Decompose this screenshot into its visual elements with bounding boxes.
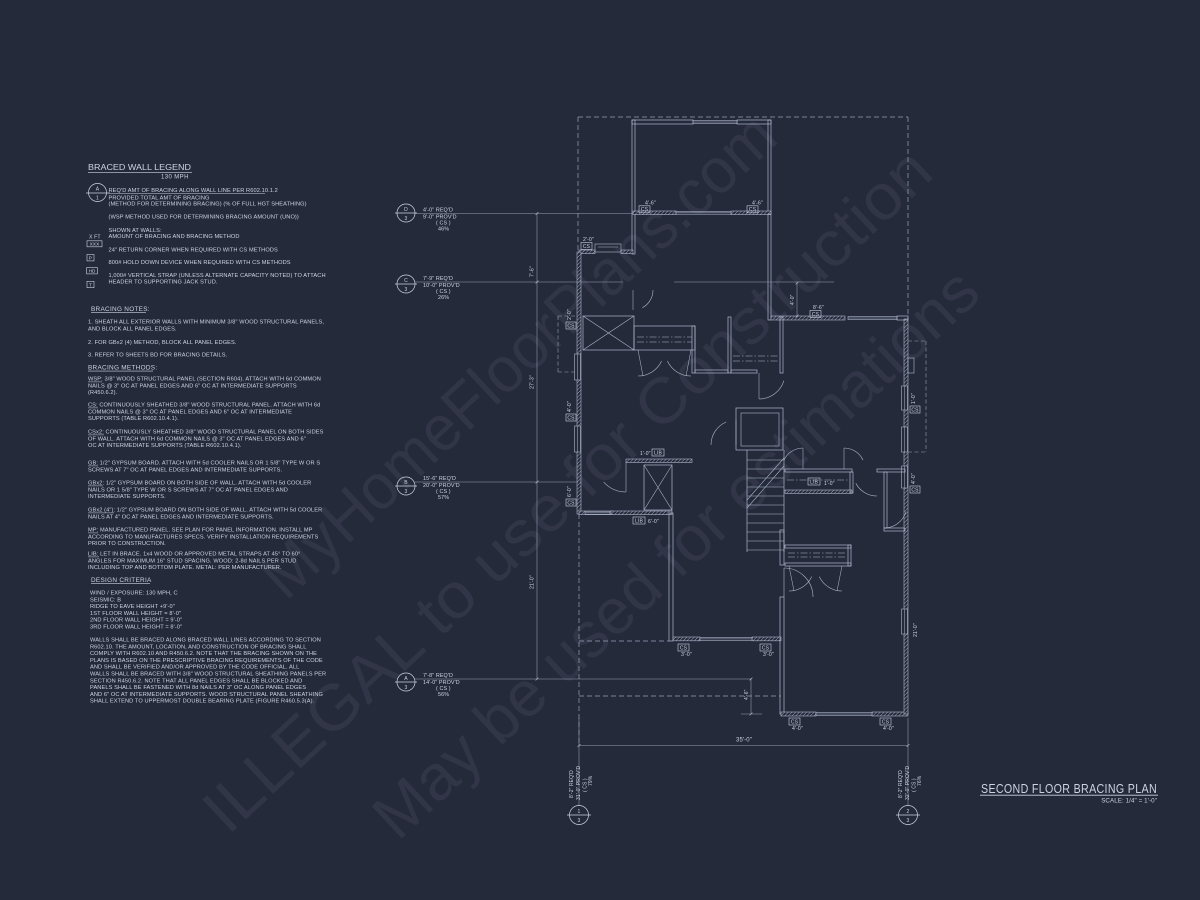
- svg-text:WALLS SHALL BE BRACED WITH 3/8: WALLS SHALL BE BRACED WITH 3/8" WOOD STR…: [90, 672, 326, 678]
- svg-text:XXX: XXX: [90, 242, 100, 247]
- svg-text:26%: 26%: [438, 295, 449, 301]
- svg-text:X FT: X FT: [89, 234, 101, 240]
- svg-text:1,000# VERTICAL STRAP (UNLESS: 1,000# VERTICAL STRAP (UNLESS ALTERNATE …: [109, 273, 326, 279]
- svg-text:BRACING NOTES:: BRACING NOTES:: [91, 306, 150, 313]
- svg-text:LIB: LIB: [635, 518, 643, 524]
- svg-text:130 MPH: 130 MPH: [161, 175, 189, 181]
- svg-text:PRIOR TO CONSTRUCTION.: PRIOR TO CONSTRUCTION.: [88, 541, 166, 547]
- svg-text:CS: CS: [812, 312, 820, 318]
- svg-text:GB: 1/2" GYPSUM BOARD. ATTACH: GB: 1/2" GYPSUM BOARD. ATTACH WITH 5d CO…: [88, 461, 320, 467]
- svg-text:CS: CS: [749, 207, 757, 213]
- svg-text:SECOND FLOOR BRACING PLAN: SECOND FLOOR BRACING PLAN: [981, 781, 1157, 796]
- svg-text:35'-0": 35'-0": [736, 738, 752, 744]
- svg-text:LIB: LIB: [810, 479, 818, 485]
- svg-text:SHALL EXTEND TO UPPERMOST DOUB: SHALL EXTEND TO UPPERMOST DOUBLE BEARING…: [90, 699, 315, 705]
- svg-text:WSP: 3/8" WOOD STRUCTURAL PANE: WSP: 3/8" WOOD STRUCTURAL PANEL (SECTION…: [88, 377, 321, 383]
- svg-text:1ST FLOOR WALL HEIGHT = 8'-0": 1ST FLOOR WALL HEIGHT = 8'-0": [90, 611, 181, 617]
- svg-text:(METHOD FOR DETERMINING BRACIN: (METHOD FOR DETERMINING BRACING) (% OF F…: [109, 202, 307, 208]
- svg-text:PANELS SHALL BE FASTENED WITH: PANELS SHALL BE FASTENED WITH 8d NAILS A…: [90, 685, 306, 691]
- svg-text:AND SHALL BE VERIFIED AND/OR A: AND SHALL BE VERIFIED AND/OR APPROVED BY…: [90, 665, 299, 671]
- svg-text:1'-0": 1'-0": [824, 481, 835, 487]
- svg-text:800# HOLD DOWN DEVICE WHEN REQ: 800# HOLD DOWN DEVICE WHEN REQUIRED WITH…: [109, 260, 291, 266]
- svg-text:CS: CS: [567, 415, 575, 421]
- svg-text:DESIGN CRITERIA: DESIGN CRITERIA: [91, 577, 152, 584]
- svg-text:WALLS SHALL BE BRACED ALONG BR: WALLS SHALL BE BRACED ALONG BRACED WALL …: [90, 638, 321, 644]
- svg-text:3: 3: [405, 287, 408, 293]
- svg-text:31'-0" PROV'D: 31'-0" PROV'D: [576, 766, 582, 800]
- svg-text:NAILS @ 3" OC AT PANEL EDGES A: NAILS @ 3" OC AT PANEL EDGES AND 6" OC A…: [88, 383, 297, 389]
- svg-text:CS: CS: [791, 719, 799, 725]
- svg-text:BRACING METHODS:: BRACING METHODS:: [88, 365, 157, 372]
- svg-text:NAILS OR 1 5/8" TYPE W OR S SC: NAILS OR 1 5/8" TYPE W OR S SCREWS AT 7"…: [88, 487, 288, 493]
- svg-text:7'-6": 7'-6": [530, 266, 536, 277]
- svg-text:PROVIDED TOTAL AMT OF BRACING: PROVIDED TOTAL AMT OF BRACING: [109, 195, 210, 201]
- svg-text:1: 1: [578, 809, 581, 815]
- svg-text:CS: CONTINUOUSLY SHEATHED 3/8": CS: CONTINUOUSLY SHEATHED 3/8" WOOD STRU…: [88, 403, 320, 409]
- svg-text:4'-0": 4'-0": [883, 726, 894, 732]
- svg-text:24" RETURN CORNER WHEN REQUIRE: 24" RETURN CORNER WHEN REQUIRED WITH CS …: [109, 247, 278, 253]
- svg-text:GBx2 (4"): 1/2" GYPSUM BOARD O: GBx2 (4"): 1/2" GYPSUM BOARD ON BOTH SID…: [88, 508, 322, 514]
- svg-text:COMMON NAILS @ 3" OC AT PANEL: COMMON NAILS @ 3" OC AT PANEL EDGES AND …: [88, 409, 292, 415]
- svg-text:46%: 46%: [438, 227, 449, 233]
- svg-text:2. FOR GBx2 (4) METHOD, BLOCK: 2. FOR GBx2 (4) METHOD, BLOCK ALL PANEL …: [88, 340, 237, 346]
- svg-text:C: C: [404, 278, 408, 284]
- svg-text:WIND / EXPOSURE: 130 MPH, C: WIND / EXPOSURE: 130 MPH, C: [90, 591, 178, 597]
- svg-text:OC AT INTERMEDIATE SUPPORTS (T: OC AT INTERMEDIATE SUPPORTS (TABLE R602.…: [88, 443, 242, 449]
- svg-text:4'-0" REQ'D: 4'-0" REQ'D: [423, 208, 453, 214]
- svg-text:3RD FLOOR WALL HEIGHT = 8'-0": 3RD FLOOR WALL HEIGHT = 8'-0": [90, 625, 182, 631]
- svg-text:HD: HD: [89, 269, 96, 274]
- svg-text:SCREWS AT 7" OC AT PANEL EDGES: SCREWS AT 7" OC AT PANEL EDGES AND INTER…: [88, 467, 283, 473]
- svg-text:RIDGE TO EAVE HEIGHT +9'-0": RIDGE TO EAVE HEIGHT +9'-0": [90, 604, 175, 610]
- svg-text:INTERMEDIATE SUPPORTS.: INTERMEDIATE SUPPORTS.: [88, 494, 166, 500]
- svg-text:1: 1: [96, 196, 99, 202]
- svg-text:79%: 79%: [588, 775, 594, 786]
- svg-text:T: T: [89, 282, 92, 287]
- svg-text:3. REFER TO SHEETS BD FOR BRAC: 3. REFER TO SHEETS BD FOR BRACING DETAIL…: [88, 353, 228, 359]
- svg-text:3: 3: [405, 216, 408, 222]
- svg-text:SHOWN AT WALLS:: SHOWN AT WALLS:: [109, 228, 162, 234]
- svg-text:A: A: [96, 187, 100, 193]
- svg-text:3: 3: [578, 818, 581, 824]
- svg-text:4'-6": 4'-6": [744, 689, 750, 700]
- svg-text:GBx2: 1/2" GYPSUM BOARD ON BOT: GBx2: 1/2" GYPSUM BOARD ON BOTH SIDE OF …: [88, 481, 311, 487]
- svg-text:PLANS IS BASED ON THE PRESCRIP: PLANS IS BASED ON THE PRESCRIPTIVE BRACI…: [90, 658, 323, 664]
- svg-text:COMPLY WITH R602.10 AND R450.6: COMPLY WITH R602.10 AND R450.6.2. NOTE T…: [90, 651, 317, 657]
- svg-text:3: 3: [907, 818, 910, 824]
- svg-text:HEADER TO SUPPORTING JACK STUD: HEADER TO SUPPORTING JACK STUD.: [109, 280, 218, 286]
- svg-text:P: P: [89, 256, 92, 261]
- svg-text:CS: CS: [762, 645, 770, 651]
- svg-text:21'-0": 21'-0": [913, 623, 919, 637]
- svg-text:8'-2" REQ'D: 8'-2" REQ'D: [898, 770, 904, 798]
- svg-text:BRACED WALL LEGEND: BRACED WALL LEGEND: [88, 162, 191, 172]
- svg-text:CS: CS: [911, 487, 919, 493]
- svg-text:7'-9" REQ'D: 7'-9" REQ'D: [423, 276, 453, 282]
- svg-text:OF WALL. ATTACH WITH 6d COMMON: OF WALL. ATTACH WITH 6d COMMON NAILS @ 3…: [88, 436, 306, 442]
- svg-text:D: D: [404, 207, 408, 213]
- svg-text:2ND FLOOR WALL HEIGHT = 9'-0": 2ND FLOOR WALL HEIGHT = 9'-0": [90, 618, 182, 624]
- svg-text:4'-0": 4'-0": [911, 473, 917, 484]
- svg-text:4'-0": 4'-0": [567, 401, 573, 412]
- svg-text:76%: 76%: [917, 775, 923, 786]
- svg-text:56%: 56%: [438, 692, 449, 698]
- svg-text:NAILS AT 4" OC AT PANEL EDGES: NAILS AT 4" OC AT PANEL EDGES AND INTERM…: [88, 514, 274, 520]
- svg-text:8'-2" REQ'D: 8'-2" REQ'D: [569, 770, 575, 798]
- svg-text:4'-0": 4'-0": [792, 726, 803, 732]
- svg-text:SEISMIC: B: SEISMIC: B: [90, 597, 121, 603]
- svg-text:SECTION R450.6.2. NOTE THAT AL: SECTION R450.6.2. NOTE THAT ALL PANEL ED…: [90, 678, 302, 684]
- svg-text:SCALE: 1/4" = 1'-0": SCALE: 1/4" = 1'-0": [1101, 798, 1157, 805]
- svg-text:AND 6" OC AT INTERMEDIATE SUPP: AND 6" OC AT INTERMEDIATE SUPPORTS. WOOD…: [90, 692, 323, 698]
- svg-text:AND BLOCK ALL PANEL EDGES.: AND BLOCK ALL PANEL EDGES.: [88, 326, 177, 332]
- svg-text:CS: CS: [680, 645, 688, 651]
- svg-text:32'-0" PROV'D: 32'-0" PROV'D: [905, 766, 911, 800]
- svg-text:CSx2: CONTINUOUSLY SHEATHED 3/: CSx2: CONTINUOUSLY SHEATHED 3/8" WOOD ST…: [88, 430, 324, 436]
- svg-text:21'-0": 21'-0": [530, 575, 536, 589]
- svg-text:AMOUNT OF BRACING AND BRACING: AMOUNT OF BRACING AND BRACING METHOD: [109, 234, 240, 240]
- svg-text:R602.10. THE AMOUNT, LOCATION,: R602.10. THE AMOUNT, LOCATION, AND CONST…: [90, 644, 307, 650]
- svg-text:2: 2: [907, 809, 910, 815]
- svg-text:3'-0": 3'-0": [763, 652, 774, 658]
- svg-text:57%: 57%: [438, 495, 449, 501]
- svg-text:CS: CS: [911, 407, 919, 413]
- svg-text:1. SHEATH ALL EXTERIOR WALLS W: 1. SHEATH ALL EXTERIOR WALLS WITH MINIMU…: [88, 320, 324, 326]
- svg-text:3'-0": 3'-0": [681, 652, 692, 658]
- svg-text:(WSP METHOD USED FOR DETERMINI: (WSP METHOD USED FOR DETERMINING BRACING…: [109, 215, 299, 221]
- svg-text:CS: CS: [882, 719, 890, 725]
- svg-text:7'-8" REQ'D: 7'-8" REQ'D: [423, 673, 453, 679]
- svg-text:SUPPORTS (TABLE R602.10.4.1).: SUPPORTS (TABLE R602.10.4.1).: [88, 416, 179, 422]
- svg-text:1'-0": 1'-0": [911, 393, 917, 404]
- svg-text:(R450.6.2).: (R450.6.2).: [88, 390, 118, 396]
